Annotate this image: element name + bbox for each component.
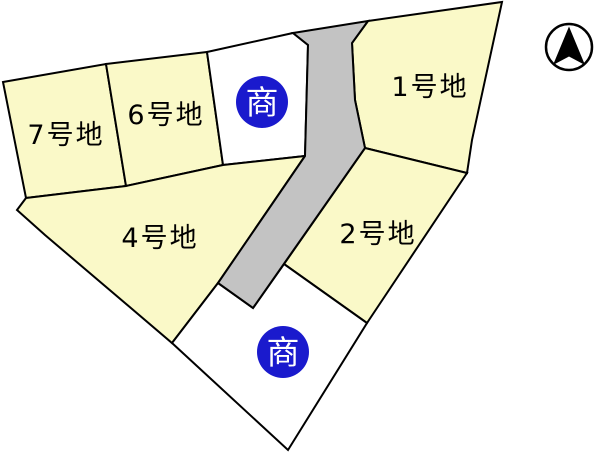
- site-plan: 7号地 6号地 1号地 2号地 4号地: [0, 0, 600, 453]
- north-compass-icon: [546, 24, 592, 70]
- lot-6-label: 6号地: [127, 100, 204, 131]
- lot-2-label: 2号地: [339, 219, 416, 250]
- commercial-badge-top-label: 商: [246, 83, 279, 122]
- commercial-badge-bottom-label: 商: [267, 333, 300, 372]
- lot-1: 1号地: [352, 2, 502, 173]
- lot-6: 6号地: [106, 52, 223, 186]
- site-plan-svg: 7号地 6号地 1号地 2号地 4号地: [0, 0, 600, 453]
- commercial-badge-bottom: 商: [257, 326, 309, 378]
- commercial-badge-top: 商: [236, 76, 288, 128]
- lot-1-label: 1号地: [391, 72, 468, 103]
- lot-7: 7号地: [3, 64, 126, 198]
- lot-7-label: 7号地: [27, 120, 104, 151]
- lot-4-label: 4号地: [121, 223, 198, 254]
